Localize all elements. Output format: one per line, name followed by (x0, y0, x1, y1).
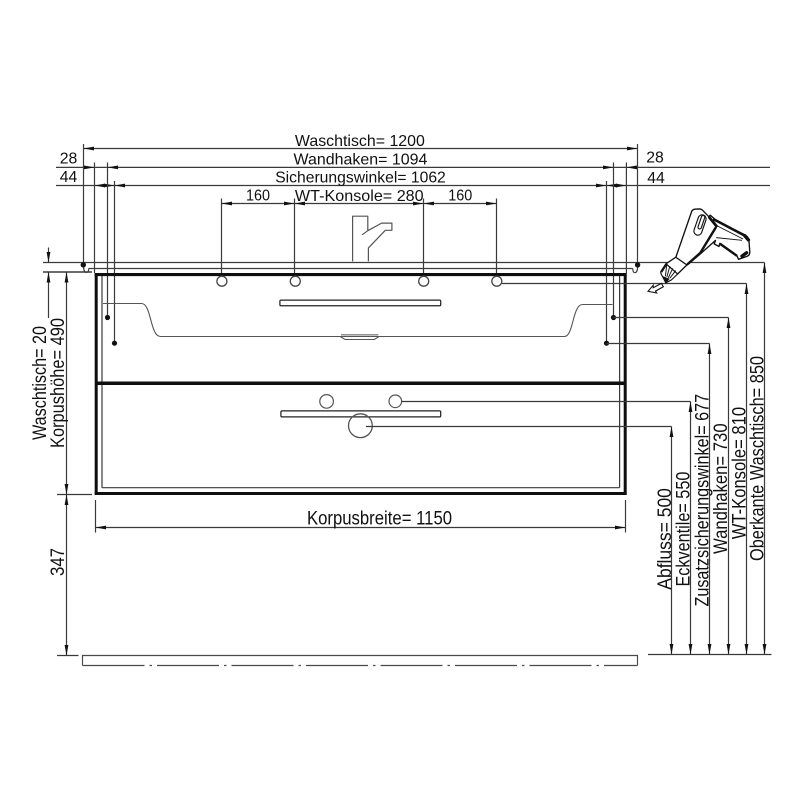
svg-text:Sicherungswinkel= 1062: Sicherungswinkel= 1062 (275, 170, 446, 187)
svg-text:28: 28 (60, 151, 78, 168)
svg-text:WT-Konsole= 280: WT-Konsole= 280 (295, 188, 424, 205)
svg-text:Waschtisch= 1200: Waschtisch= 1200 (295, 133, 425, 150)
svg-text:160: 160 (448, 188, 472, 205)
svg-text:347: 347 (47, 548, 69, 576)
svg-text:160: 160 (246, 188, 270, 205)
svg-text:Korpusbreite= 1150: Korpusbreite= 1150 (307, 508, 452, 530)
svg-text:44: 44 (647, 170, 665, 187)
svg-text:44: 44 (60, 169, 78, 186)
svg-text:Korpushöhe= 490: Korpushöhe= 490 (47, 318, 69, 448)
svg-text:Wandhaken= 1094: Wandhaken= 1094 (294, 151, 428, 168)
svg-text:28: 28 (646, 150, 664, 167)
svg-text:Oberkante Waschtisch= 850: Oberkante Waschtisch= 850 (747, 356, 769, 561)
